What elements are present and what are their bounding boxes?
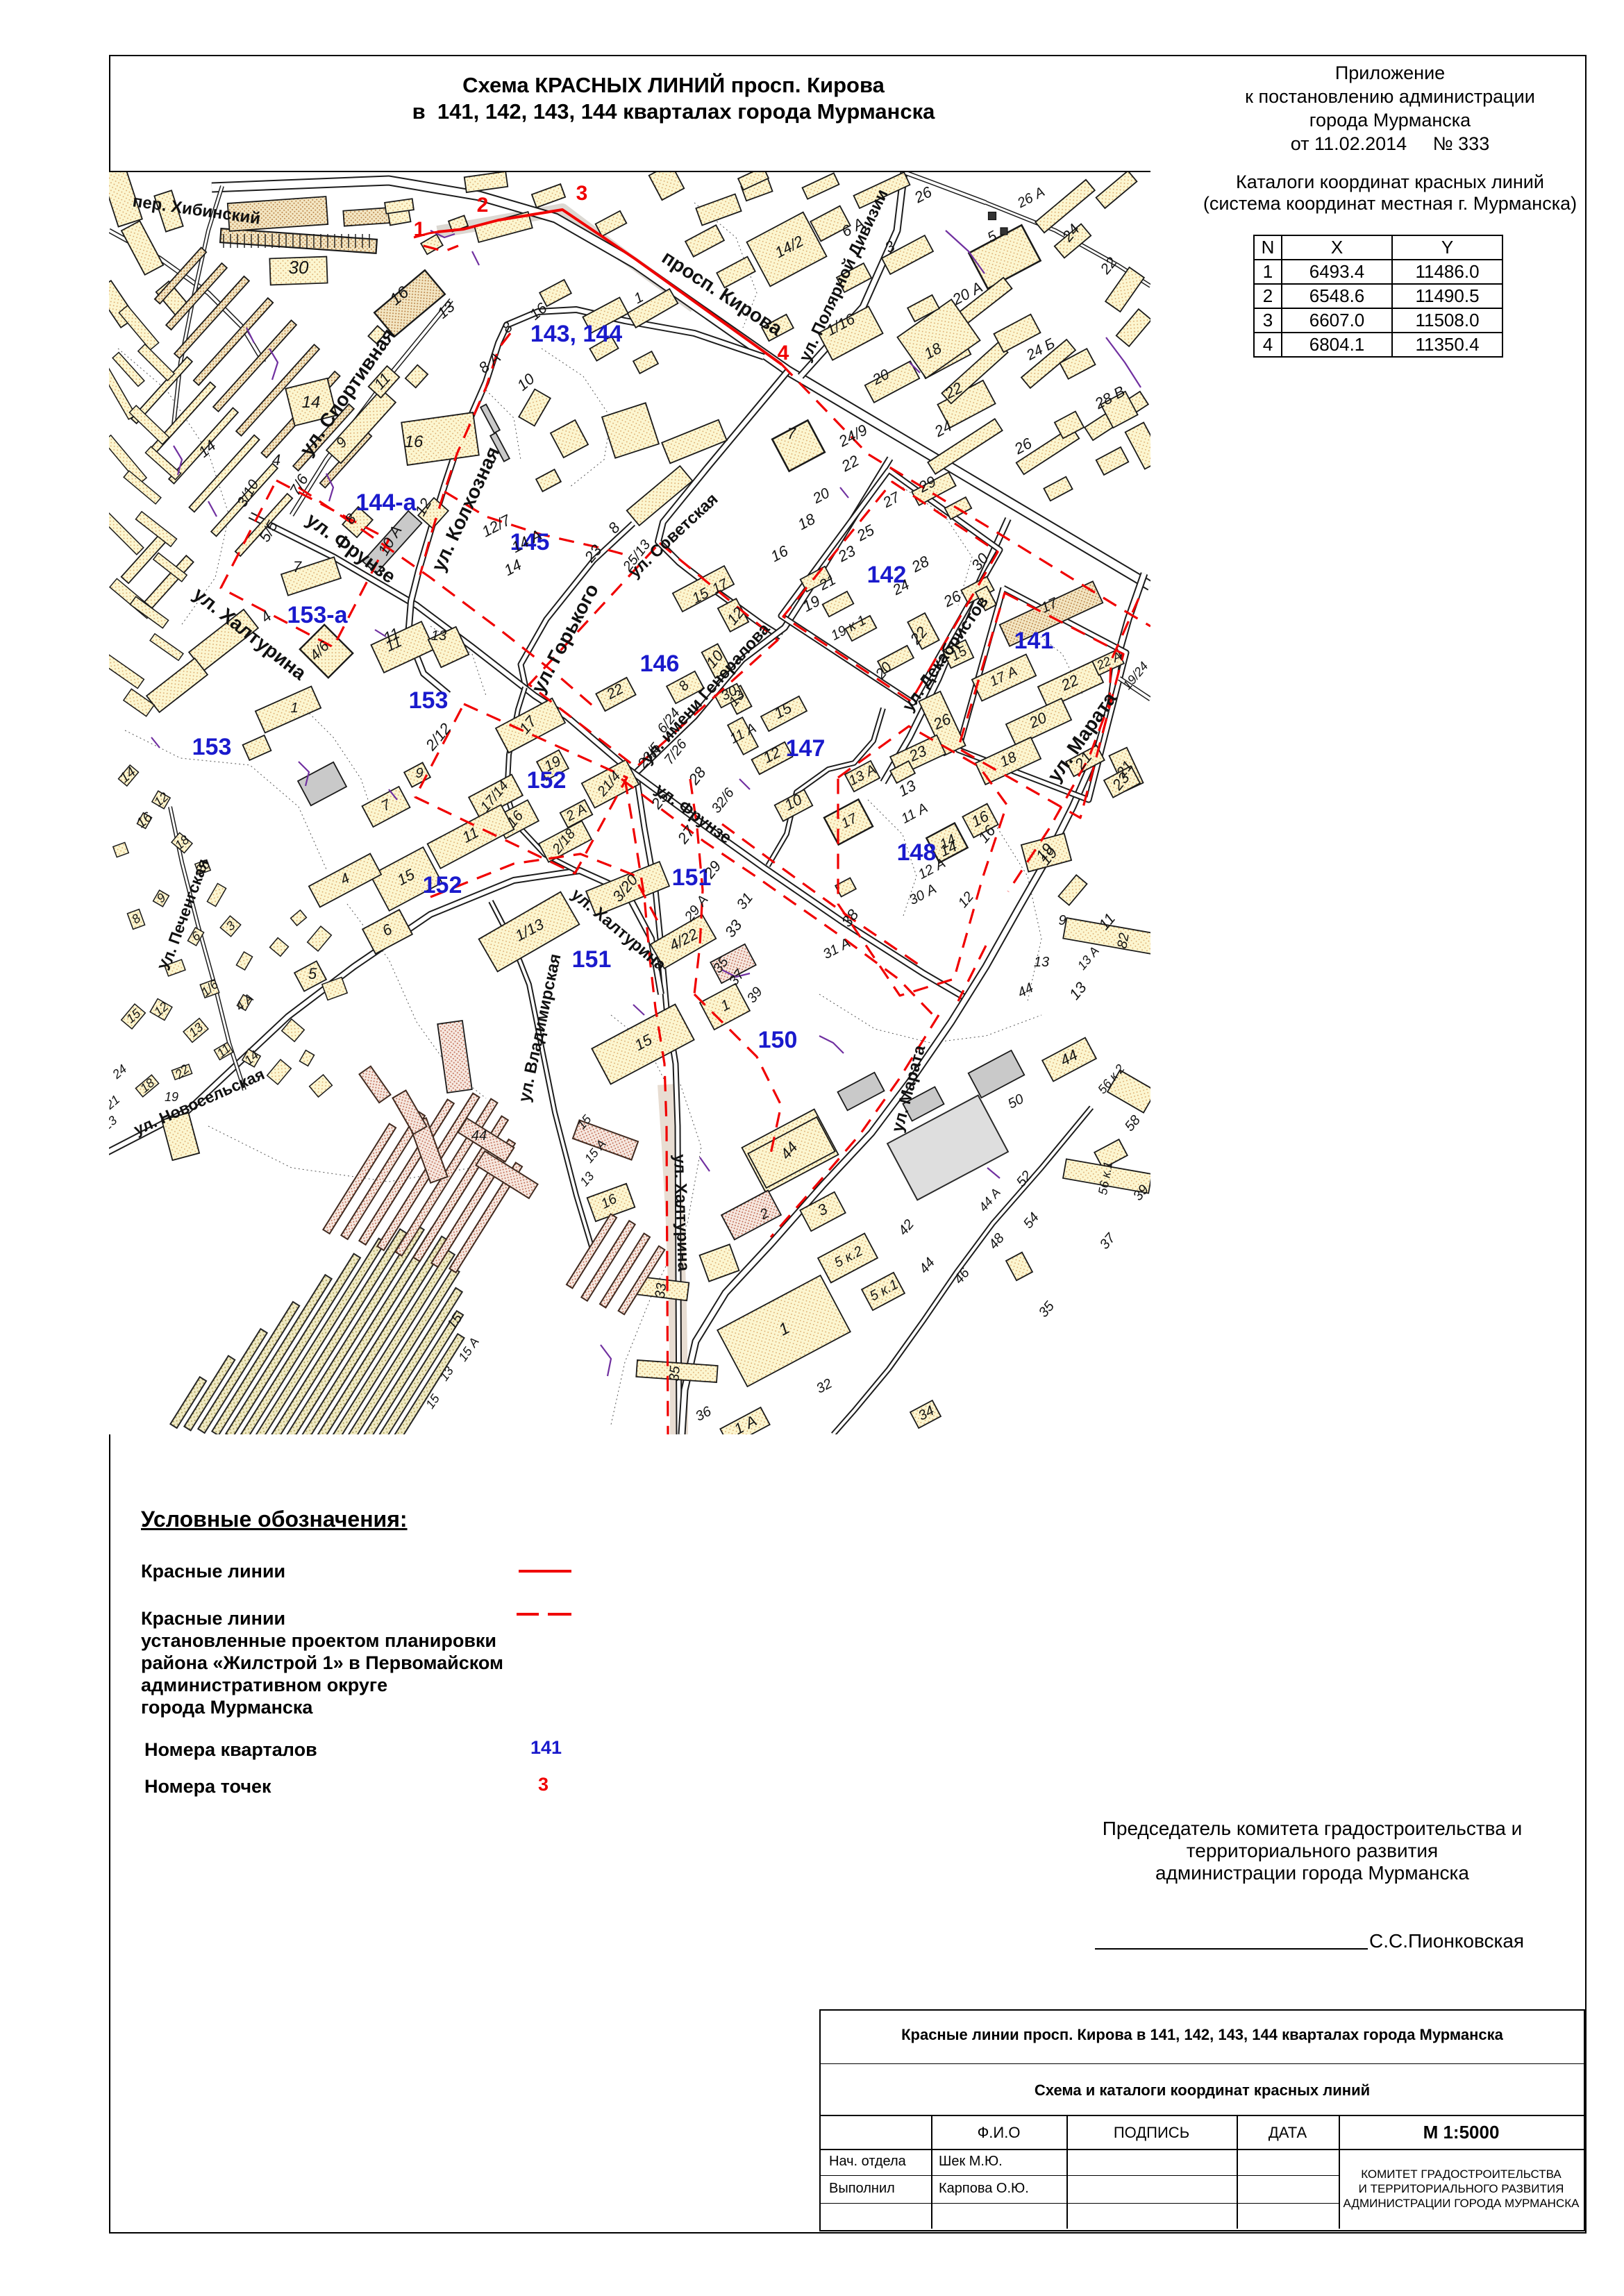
svg-text:13: 13	[431, 628, 446, 644]
svg-text:143, 144: 143, 144	[530, 321, 622, 347]
svg-text:5: 5	[308, 965, 317, 982]
svg-text:4: 4	[272, 451, 281, 469]
svg-text:13: 13	[1034, 955, 1049, 970]
svg-text:1: 1	[290, 701, 298, 716]
svg-text:14: 14	[302, 393, 321, 412]
svg-text:144-а: 144-а	[356, 489, 417, 516]
svg-text:16: 16	[405, 433, 424, 451]
svg-text:152: 152	[527, 767, 567, 794]
svg-text:82: 82	[1114, 932, 1132, 950]
svg-text:152: 152	[423, 872, 462, 898]
svg-text:141: 141	[1014, 628, 1054, 654]
svg-text:33: 33	[653, 1282, 670, 1300]
svg-text:9: 9	[415, 766, 423, 781]
svg-text:151: 151	[572, 946, 612, 973]
svg-text:30: 30	[289, 257, 309, 278]
svg-text:7: 7	[293, 558, 302, 576]
svg-text:9: 9	[1058, 913, 1066, 928]
svg-text:153: 153	[192, 734, 232, 760]
svg-text:3: 3	[576, 182, 588, 205]
svg-text:1: 1	[414, 218, 426, 241]
svg-text:19: 19	[165, 1090, 178, 1104]
svg-text:147: 147	[786, 735, 826, 762]
svg-text:35: 35	[667, 1365, 683, 1382]
svg-text:44: 44	[471, 1128, 487, 1143]
svg-text:153: 153	[409, 687, 449, 714]
svg-text:4: 4	[778, 342, 789, 364]
svg-text:2: 2	[477, 194, 489, 217]
svg-text:146: 146	[640, 651, 680, 677]
svg-text:7: 7	[787, 425, 796, 442]
svg-text:150: 150	[758, 1027, 798, 1053]
svg-text:153-а: 153-а	[287, 602, 349, 628]
